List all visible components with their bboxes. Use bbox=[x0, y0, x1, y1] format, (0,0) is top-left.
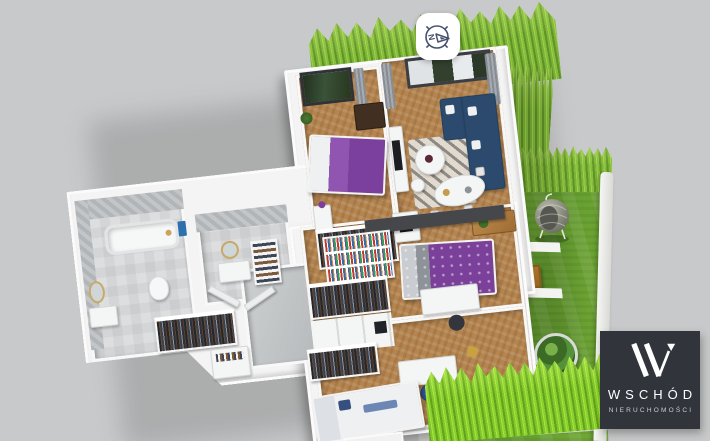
floorplan-render: N WSCHÓD NIERUCHOMOŚCI bbox=[0, 0, 710, 441]
hanging-egg-chair bbox=[526, 182, 578, 244]
logo-subtitle-text: NIERUCHOMOŚCI bbox=[600, 407, 700, 414]
vanity-unit bbox=[217, 260, 251, 283]
window bbox=[299, 67, 355, 107]
linen-shelf bbox=[250, 239, 282, 286]
brand-logo: WSCHÓD NIERUCHOMOŚCI bbox=[600, 331, 700, 429]
washbasin bbox=[89, 305, 119, 328]
shoe-cabinet bbox=[210, 345, 251, 379]
logo-brand-text: WSCHÓD bbox=[600, 387, 700, 402]
dresser bbox=[353, 102, 386, 131]
compass-icon[interactable]: N bbox=[416, 13, 460, 60]
towel bbox=[177, 221, 187, 237]
egg-chair-icon bbox=[526, 182, 578, 244]
double-bed-purple bbox=[307, 134, 387, 195]
logo-w-mark-icon bbox=[623, 339, 677, 381]
compass-glyph: N bbox=[416, 15, 460, 59]
